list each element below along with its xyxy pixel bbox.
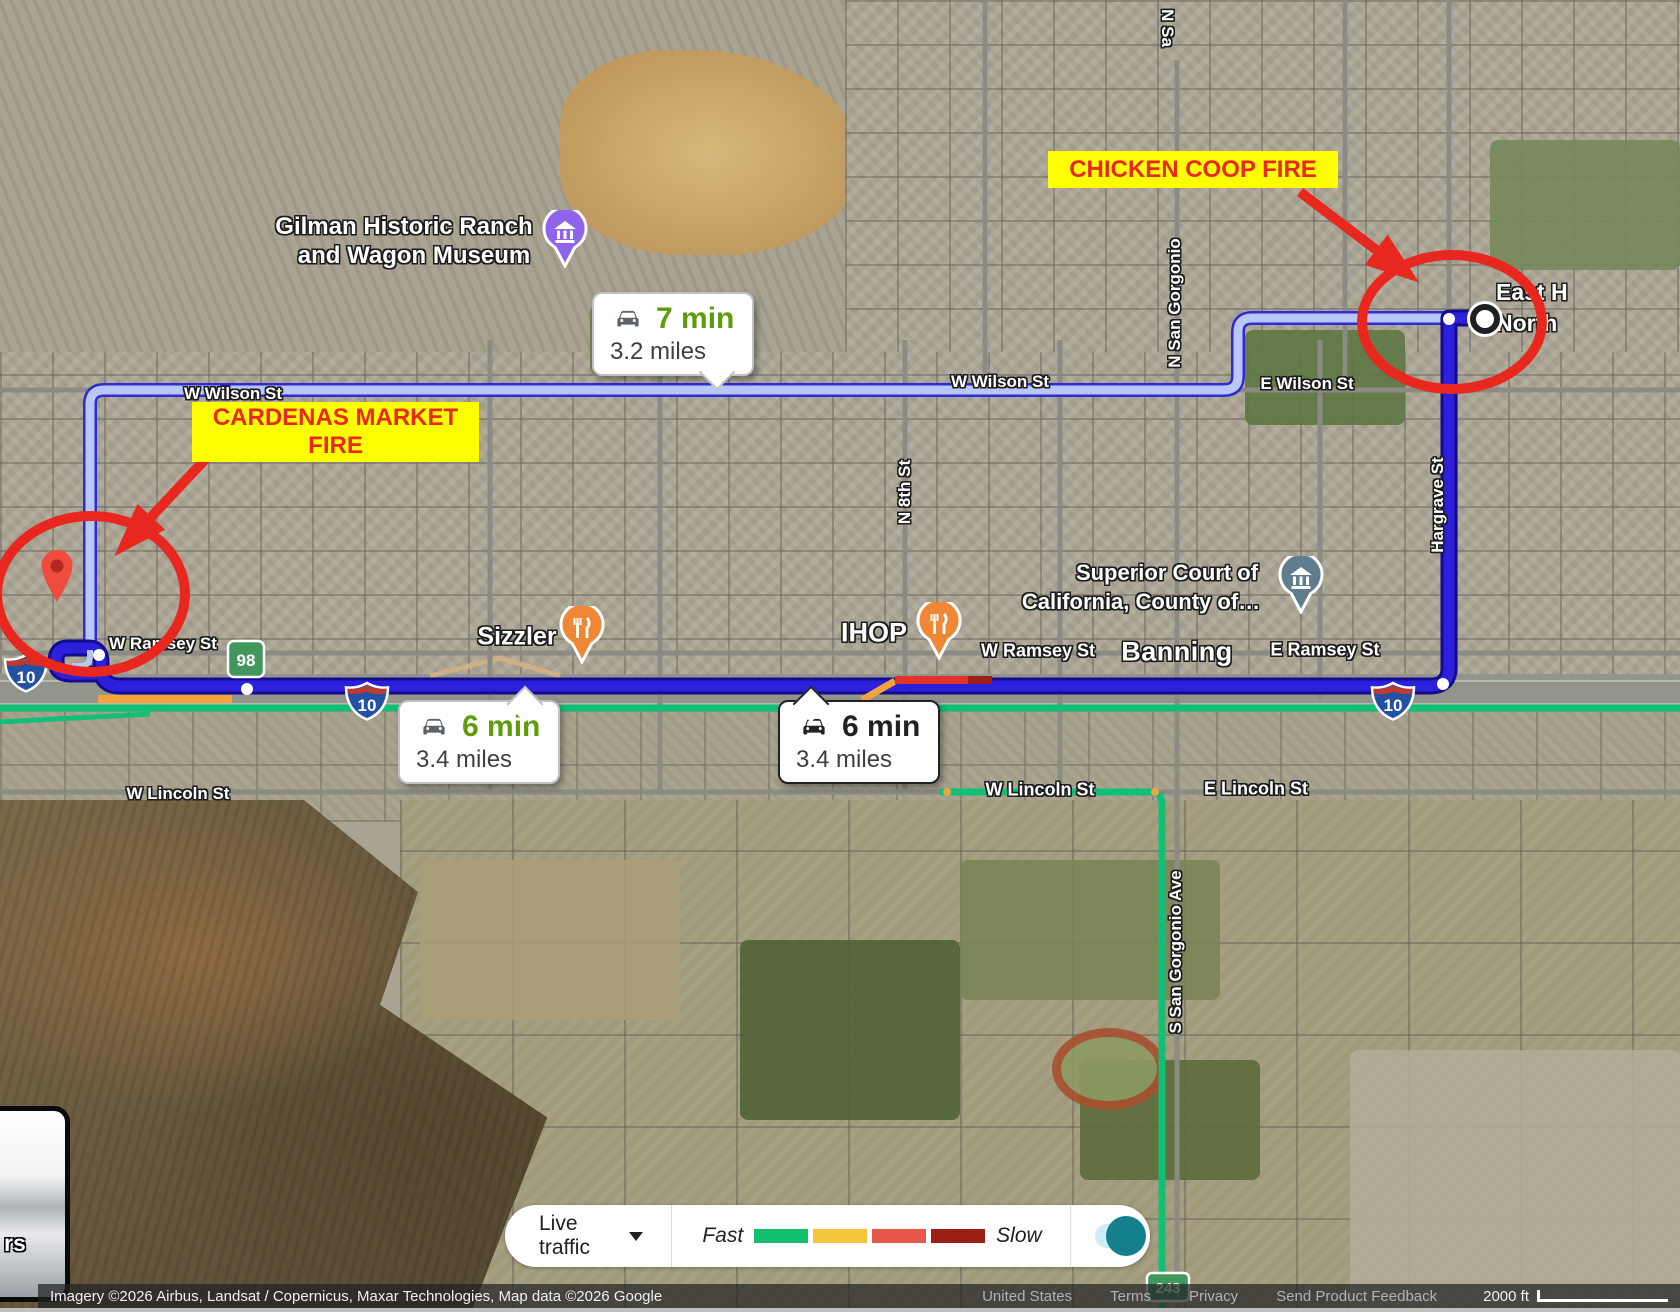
badge-distance: 3.4 miles [796,746,920,774]
chevron-down-icon [629,1232,643,1241]
terrain-patch-field-tan [420,860,680,1020]
poi-label-gilman-museum-line2: and Wagon Museum [298,242,530,270]
street-label-e-wilson: E Wilson St [1260,374,1353,394]
google-maps-canvas[interactable]: 10 10 10 98 243 W Wilson St W Wilson St … [0,0,1680,1312]
terms-link[interactable]: Terms [1110,1288,1151,1305]
car-icon [610,304,646,334]
layers-label-partial: rs [4,1230,26,1257]
street-label-w-ramsey-west: W Ramsey St [109,634,217,654]
region-label: United States [982,1288,1072,1305]
poi-label-sizzler: Sizzler [477,623,556,652]
legend-swatch-dark-red [931,1229,985,1243]
street-label-s-san-gorgonio-ave: S San Gorgonio Ave [1166,870,1186,1033]
poi-label-superior-court-line1: Superior Court of [1076,560,1258,586]
street-label-hargrave: Hargrave St [1428,457,1448,552]
route-badge-i10-west-6min[interactable]: 6 min 3.4 miles [398,700,560,784]
destination-endpoint-ring[interactable] [1470,304,1500,334]
privacy-link[interactable]: Privacy [1189,1288,1238,1305]
destination-label-line2: North [1496,310,1557,337]
divider [671,1205,672,1267]
museum-pin-icon[interactable] [542,210,588,268]
legend-swatch-red [872,1229,926,1243]
stadium [1052,1028,1166,1110]
street-label-w-ramsey-east: W Ramsey St [981,641,1095,662]
street-label-n-san-gorgonio: N San Gorgonio [1165,238,1185,367]
map-attribution-bar: Imagery ©2026 Airbus, Landsat / Copernic… [38,1284,1680,1308]
street-label-w-wilson-east: W Wilson St [951,372,1049,392]
ihop-restaurant-pin-icon[interactable] [916,602,962,660]
street-label-w-wilson-west: W Wilson St [184,384,282,404]
terrain-patch-urban-se [1350,1050,1680,1312]
sizzler-restaurant-pin-icon[interactable] [559,606,605,664]
destination-label-line1: East H [1496,279,1568,306]
street-label-n-san-gorgonio-partial: N Sa [1157,9,1177,47]
traffic-control-bar: Live traffic Fast Slow [505,1205,1150,1267]
imagery-credits: Imagery ©2026 Airbus, Landsat / Copernic… [50,1288,662,1305]
street-label-w-lincoln-east: W Lincoln St [986,780,1095,801]
scale-bar [1537,1290,1668,1302]
cardenas-fire-text-line2: FIRE [192,432,479,460]
poi-label-gilman-museum-line1: Gilman Historic Ranch [275,213,532,241]
badge-distance: 3.4 miles [416,746,540,774]
legend-fast-label: Fast [702,1224,743,1248]
street-label-n-8th: N 8th St [895,460,915,524]
traffic-legend: Fast Slow [702,1205,1041,1267]
street-label-e-ramsey: E Ramsey St [1270,640,1379,661]
window-bottom-edge [0,1308,1680,1312]
chicken-coop-fire-label: CHICKEN COOP FIRE [1048,151,1338,188]
badge-time: 7 min [656,302,734,336]
toggle-knob [1106,1216,1146,1256]
cardenas-fire-text-line1: CARDENAS MARKET [192,404,479,432]
street-label-e-lincoln: E Lincoln St [1204,779,1308,800]
chicken-coop-fire-text: CHICKEN COOP FIRE [1069,156,1317,183]
traffic-toggle[interactable] [1095,1224,1142,1248]
feedback-link[interactable]: Send Product Feedback [1276,1288,1437,1305]
route-badge-i10-selected-6min[interactable]: 6 min 3.4 miles [778,700,940,784]
terrain-patch-field-dark [740,940,960,1120]
live-traffic-label: Live traffic [539,1212,615,1260]
poi-label-ihop: IHOP [841,618,907,649]
cardenas-market-fire-label: CARDENAS MARKET FIRE [192,402,479,462]
city-label-banning: Banning [1121,637,1233,668]
live-traffic-dropdown[interactable]: Live traffic [505,1205,643,1267]
legend-swatch-yellow [813,1229,867,1243]
poi-label-superior-court-line2: California, County of… [1022,589,1260,615]
origin-red-map-pin-icon[interactable] [37,547,77,605]
car-icon [416,712,452,742]
legend-swatch-green [754,1229,808,1243]
divider [1070,1205,1071,1267]
route-badge-wilson-7min[interactable]: 7 min 3.2 miles [592,292,754,376]
courthouse-pin-icon[interactable] [1278,556,1324,614]
street-label-w-lincoln-west: W Lincoln St [127,784,230,804]
layers-preview-tile[interactable] [0,1106,70,1302]
terrain-patch-green-ne [1490,140,1680,270]
legend-slow-label: Slow [996,1224,1042,1248]
scale-label: 2000 ft [1483,1288,1529,1305]
badge-time: 6 min [842,710,920,744]
